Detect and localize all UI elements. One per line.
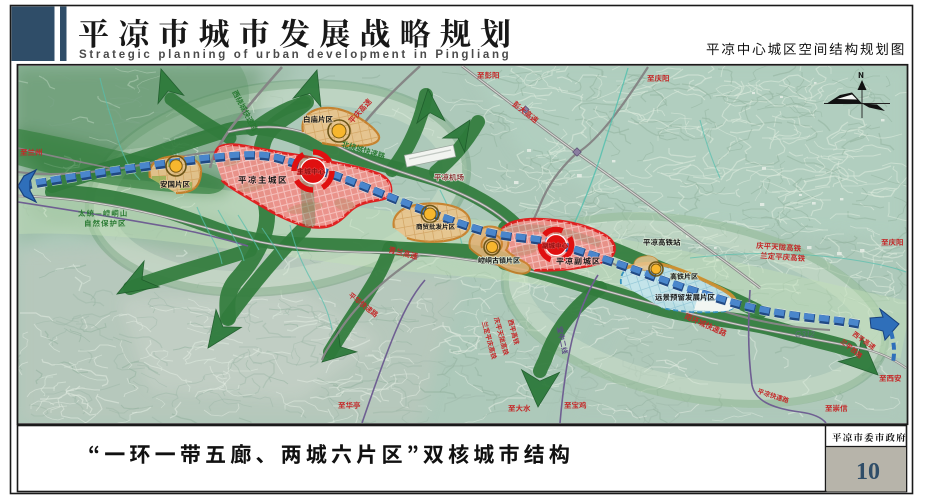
svg-text:Strategic planning of urban de: Strategic planning of urban development … (79, 49, 511, 61)
svg-text:10: 10 (856, 459, 880, 485)
svg-text:G312: G312 (795, 330, 815, 339)
